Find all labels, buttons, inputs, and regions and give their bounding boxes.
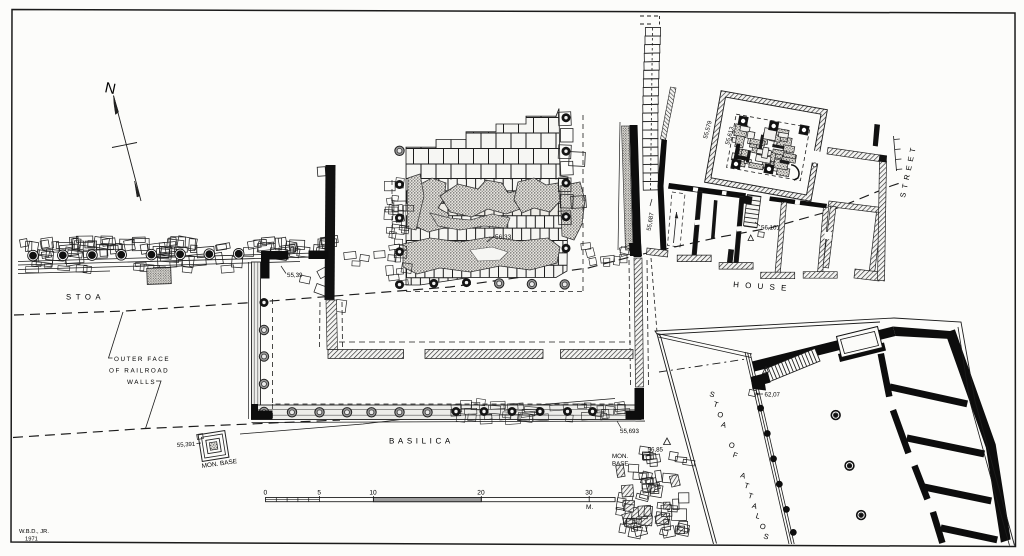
svg-text:10: 10 (369, 490, 377, 497)
svg-text:W.B.D., JR.: W.B.D., JR. (19, 529, 49, 535)
svg-text:MON.: MON. (612, 453, 628, 460)
svg-text:BASE: BASE (612, 461, 629, 468)
svg-text:55,693: 55,693 (620, 428, 639, 435)
svg-text:56,101: 56,101 (761, 225, 780, 232)
svg-text:55,391: 55,391 (177, 441, 196, 449)
svg-text:OUTER FACE: OUTER FACE (114, 356, 170, 363)
svg-text:STOA: STOA (66, 293, 105, 302)
svg-text:56,85: 56,85 (648, 447, 664, 454)
svg-text:55,39: 55,39 (287, 272, 303, 279)
svg-text:1971: 1971 (25, 536, 38, 543)
svg-text:62,07: 62,07 (765, 392, 781, 399)
svg-text:WALLS: WALLS (127, 379, 156, 386)
svg-text:BASILICA: BASILICA (389, 437, 454, 446)
svg-text:30: 30 (585, 490, 593, 497)
svg-text:OF RAILROAD: OF RAILROAD (109, 368, 169, 375)
svg-text:5: 5 (317, 490, 321, 497)
svg-text:20: 20 (477, 490, 485, 497)
svg-text:0: 0 (264, 490, 268, 497)
svg-text:56,33: 56,33 (495, 234, 512, 241)
svg-text:M.: M. (586, 504, 593, 511)
